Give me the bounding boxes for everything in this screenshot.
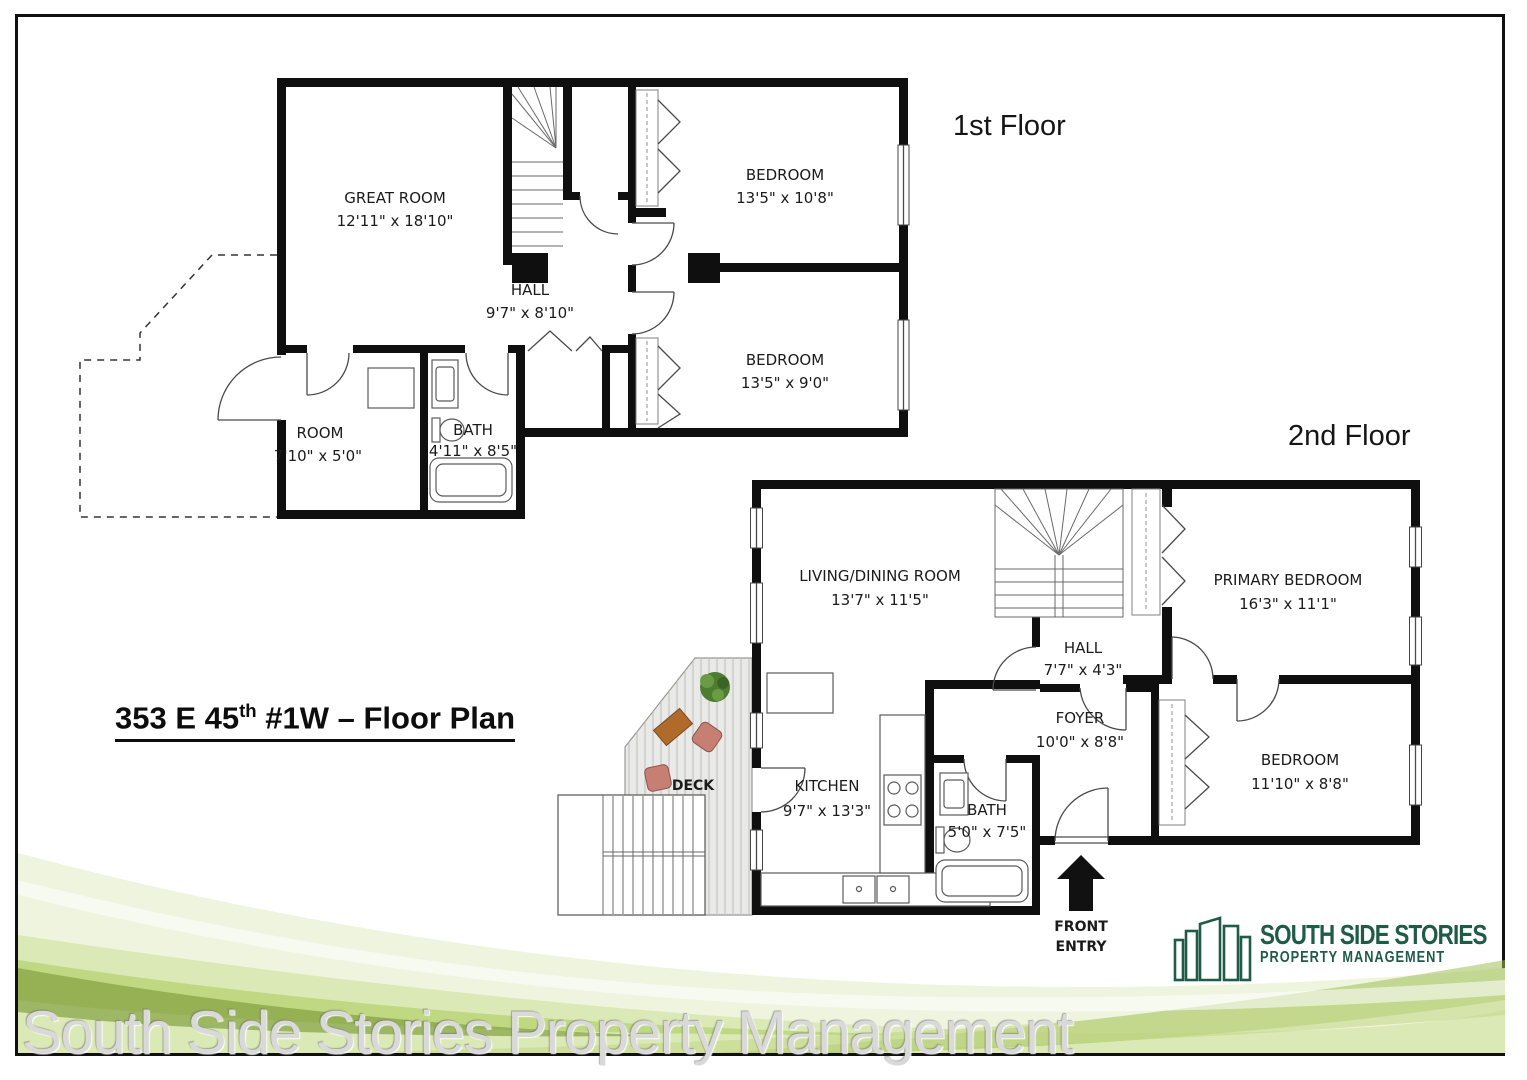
logo-text-block: SOUTH SIDE STORIES PROPERTY MANAGEMENT — [1260, 920, 1527, 967]
title-superscript: th — [239, 700, 257, 721]
room-wardrobe — [368, 368, 414, 408]
great-room-dims: 12'11" x 18'10" — [337, 212, 454, 230]
bedroom1-label: BEDROOM — [746, 166, 824, 184]
floor2-stairs — [995, 489, 1123, 617]
bath1-dims: 4'11" x 8'5" — [429, 442, 517, 460]
bedroom2-label: BEDROOM — [746, 351, 824, 369]
foyer-dims: 10'0" x 8'8" — [1036, 733, 1124, 751]
floor2-label: 2nd Floor — [1288, 420, 1411, 453]
floor1-plan-svg: GREAT ROOM 12'11" x 18'10" HALL 9'7" x 8… — [70, 70, 950, 535]
floor1-room-labels: GREAT ROOM 12'11" x 18'10" HALL 9'7" x 8… — [274, 166, 834, 465]
floor1-patio-outline — [80, 255, 277, 517]
room-label: ROOM — [297, 424, 344, 442]
exterior-stairs — [558, 795, 705, 915]
front-entry: FRONT ENTRY — [1054, 855, 1108, 955]
title-prefix: 353 E 45 — [115, 700, 239, 735]
bedroom2-dims: 13'5" x 9'0" — [741, 374, 829, 392]
living-room-label: LIVING/DINING ROOM — [799, 567, 961, 585]
potted-plant — [700, 672, 730, 702]
bath2-label: BATH — [967, 801, 1007, 819]
kitchen-label: KITCHEN — [795, 777, 860, 795]
living-room-dims: 13'7" x 11'5" — [831, 591, 929, 609]
primary-bedroom-label: PRIMARY BEDROOM — [1214, 571, 1363, 589]
buildings-icon — [1172, 914, 1256, 984]
great-room-label: GREAT ROOM — [344, 189, 446, 207]
watermark-text: South Side Stories Property Management — [22, 998, 1072, 1067]
bath2-dims: 5'0" x 7'5" — [948, 823, 1027, 841]
floor2-plan-svg: DECK — [555, 475, 1430, 955]
primary-bedroom-dims: 16'3" x 11'1" — [1239, 595, 1337, 613]
floor1-stairs — [512, 87, 563, 246]
deck-label: DECK — [672, 778, 715, 794]
company-logo: SOUTH SIDE STORIES PROPERTY MANAGEMENT — [1172, 914, 1527, 984]
title-suffix: #1W – Floor Plan — [257, 700, 515, 735]
hall2-label: HALL — [1064, 639, 1103, 657]
floor1-walls — [277, 78, 908, 519]
front-entry-line2: ENTRY — [1056, 939, 1108, 955]
page-title: 353 E 45th #1W – Floor Plan — [115, 700, 515, 742]
hall1-label: HALL — [511, 281, 550, 299]
room-dims: 7'10" x 5'0" — [274, 447, 362, 465]
bedroom-label: BEDROOM — [1261, 751, 1339, 769]
logo-company-name: SOUTH SIDE STORIES — [1260, 920, 1487, 949]
floor1-label: 1st Floor — [953, 110, 1066, 143]
bedroom-dims: 11'10" x 8'8" — [1251, 775, 1349, 793]
front-entry-line1: FRONT — [1054, 919, 1108, 935]
bath1-label: BATH — [453, 421, 493, 439]
floor2-walls — [752, 480, 1420, 915]
hall1-dims: 9'7" x 8'10" — [486, 304, 574, 322]
kitchen-dims: 9'7" x 13'3" — [783, 802, 871, 820]
foyer-label: FOYER — [1056, 709, 1105, 727]
logo-tagline: PROPERTY MANAGEMENT — [1260, 949, 1487, 967]
deck-chair-2 — [644, 764, 672, 792]
bedroom1-dims: 13'5" x 10'8" — [736, 189, 834, 207]
front-entry-arrow-icon — [1057, 855, 1105, 911]
hall2-dims: 7'7" x 4'3" — [1044, 661, 1123, 679]
